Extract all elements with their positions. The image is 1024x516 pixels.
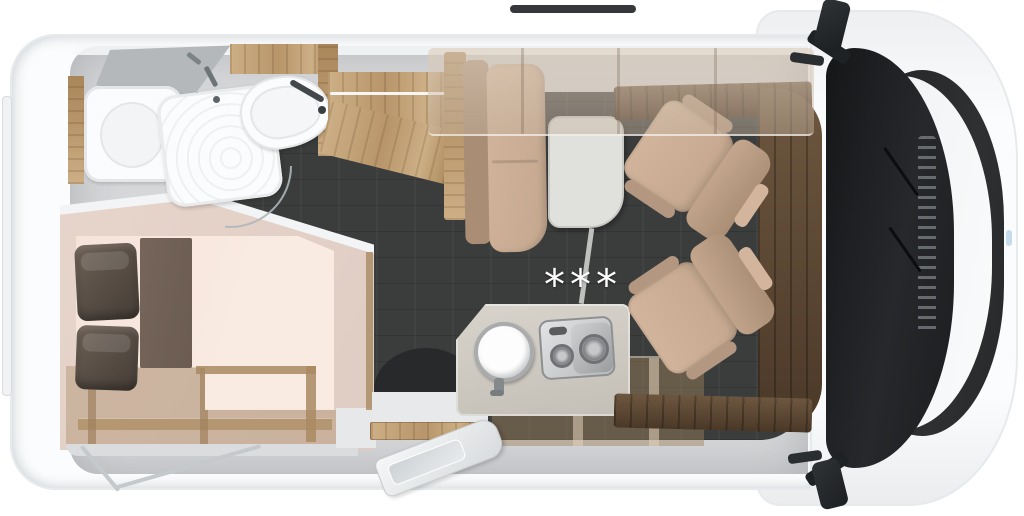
locker-divider (714, 48, 717, 134)
locker-divider (617, 48, 620, 134)
living-area-floor (186, 92, 806, 440)
locker-divider (521, 48, 524, 134)
equipment-note: *** (528, 262, 638, 308)
rear-bumper (2, 96, 12, 396)
overhead-lockers (428, 48, 814, 136)
motorhome-floorplan-top-view: *** (0, 0, 1024, 516)
roof-skylight (510, 5, 636, 13)
